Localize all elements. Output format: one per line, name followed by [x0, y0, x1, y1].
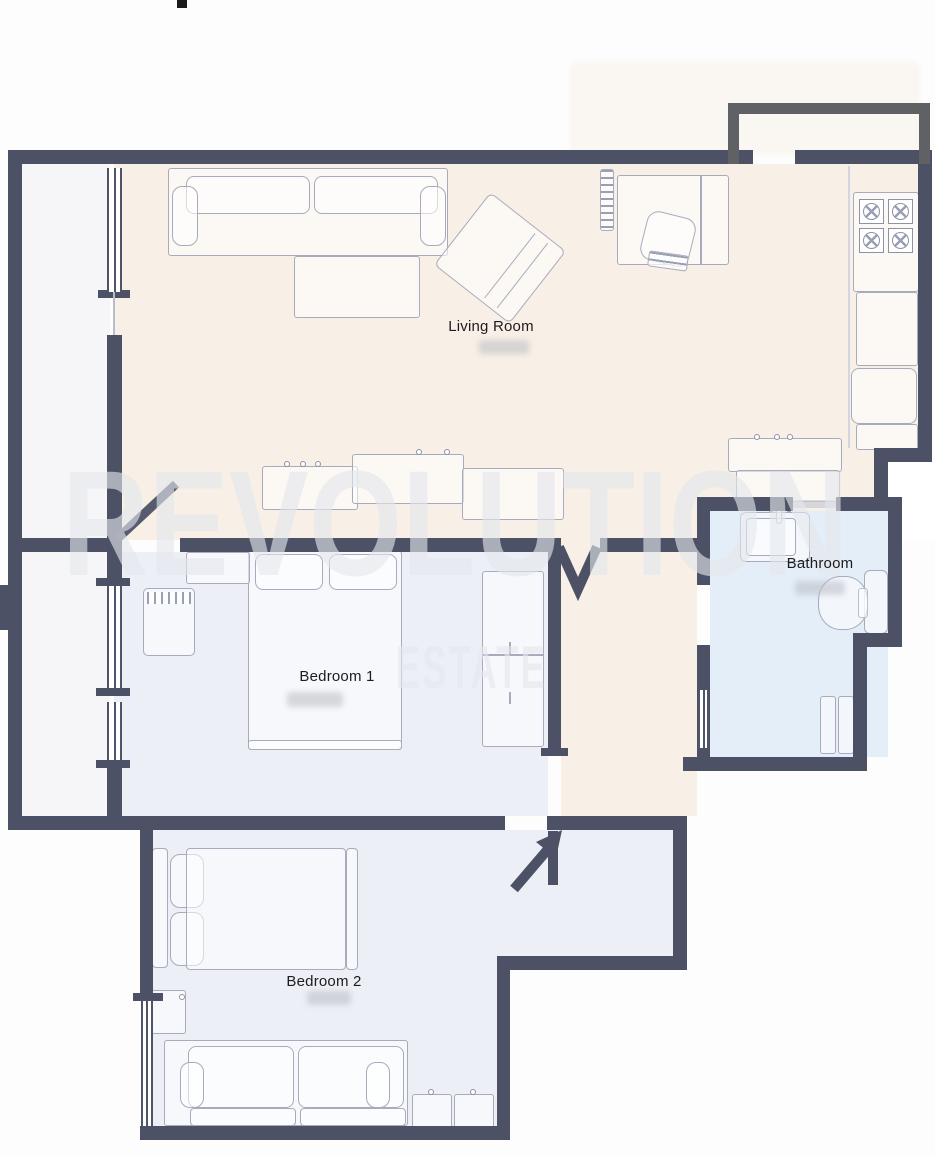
bathroom-label: Bathroom [787, 555, 854, 572]
door-swing-bedroom2 [514, 848, 549, 889]
door-symbols [0, 0, 935, 1157]
bedroom2-label: Bedroom 2 [286, 973, 361, 990]
redacted-measurement-bathroom [795, 581, 845, 595]
bedroom1-label: Bedroom 1 [299, 668, 374, 685]
floor-plan: REVOLUTION ESTATE Living Room Bedroom 1 … [0, 0, 935, 1157]
redacted-measurement-bedroom1 [287, 692, 343, 707]
redacted-measurement-bedroom2 [307, 991, 351, 1005]
redacted-measurement-living [479, 340, 529, 354]
door-swing-hallway [559, 547, 597, 589]
door-leaf-living-bedroom1 [117, 484, 176, 539]
living-room-label: Living Room [448, 318, 534, 335]
